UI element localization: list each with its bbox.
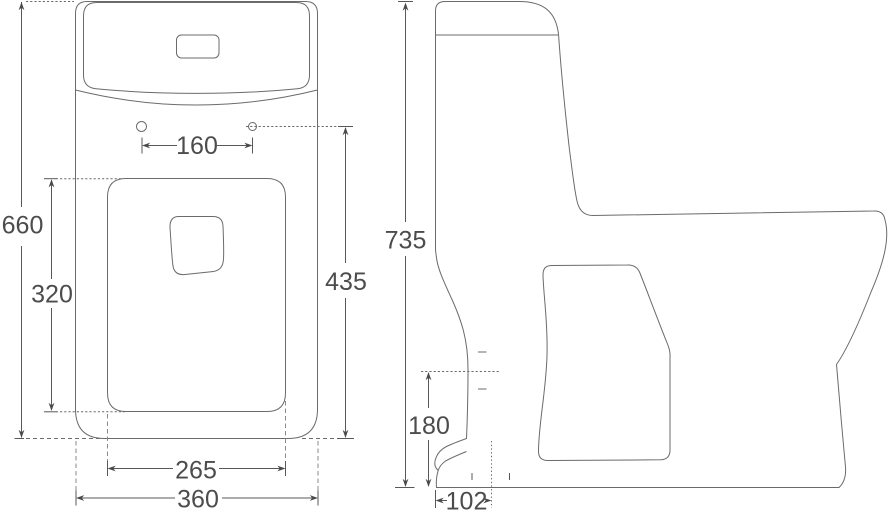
svg-text:160: 160 — [176, 132, 218, 160]
svg-text:180: 180 — [408, 412, 450, 440]
svg-text:265: 265 — [175, 457, 217, 485]
svg-text:735: 735 — [385, 227, 427, 255]
svg-text:360: 360 — [177, 486, 219, 510]
svg-text:320: 320 — [31, 281, 73, 309]
svg-text:435: 435 — [325, 268, 367, 296]
svg-text:102: 102 — [446, 487, 488, 510]
svg-text:660: 660 — [2, 212, 44, 240]
